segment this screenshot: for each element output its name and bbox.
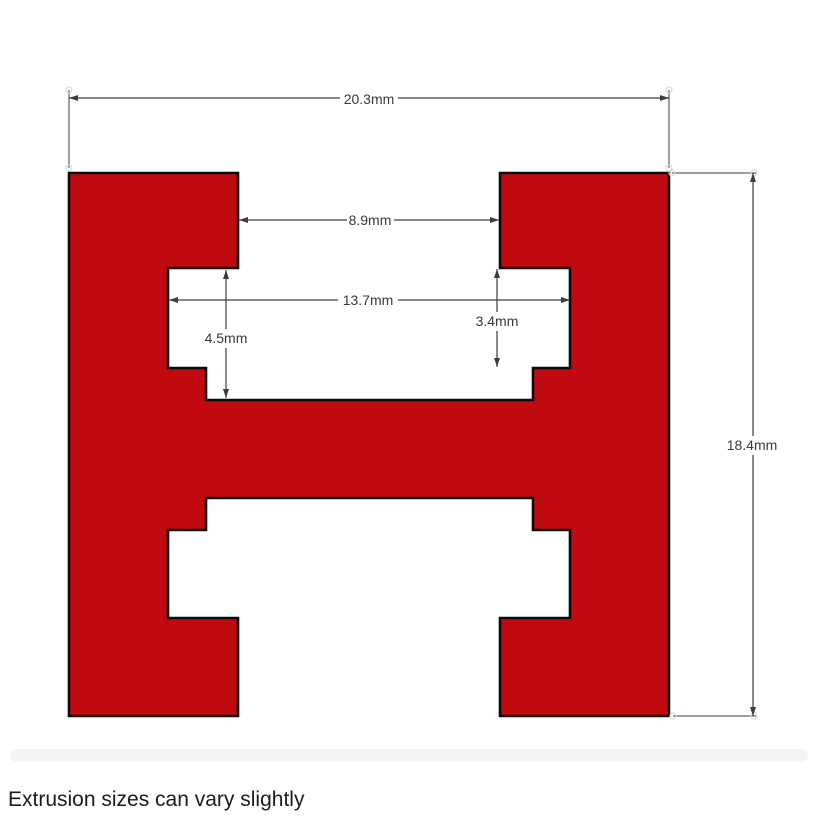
dim-overall-height: 18.4mm [669, 170, 781, 719]
dim-top-slot-width: 8.9mm [239, 211, 499, 230]
extrusion-profile [69, 173, 669, 716]
dim-lip-step-height: 3.4mm [473, 269, 521, 367]
dim-cavity-depth: 4.5mm [202, 270, 250, 398]
extrusion-diagram: 20.3mm 8.9mm 13.7mm 4.5mm 3.4mm [0, 0, 820, 820]
divider-band [10, 749, 808, 762]
dim-label-lip-step-height: 3.4mm [476, 313, 519, 329]
dim-label-inner-cavity-width: 13.7mm [343, 292, 394, 308]
diagram-canvas: 20.3mm 8.9mm 13.7mm 4.5mm 3.4mm [0, 0, 820, 820]
dim-label-overall-height: 18.4mm [727, 437, 778, 453]
dim-overall-width: 20.3mm [66, 87, 672, 171]
note-text: Extrusion sizes can vary slightly [8, 788, 305, 811]
dim-inner-cavity-width: 13.7mm [169, 291, 570, 310]
dim-label-overall-width: 20.3mm [344, 91, 395, 107]
dim-label-cavity-depth: 4.5mm [205, 330, 248, 346]
dim-label-top-slot-width: 8.9mm [349, 212, 392, 228]
